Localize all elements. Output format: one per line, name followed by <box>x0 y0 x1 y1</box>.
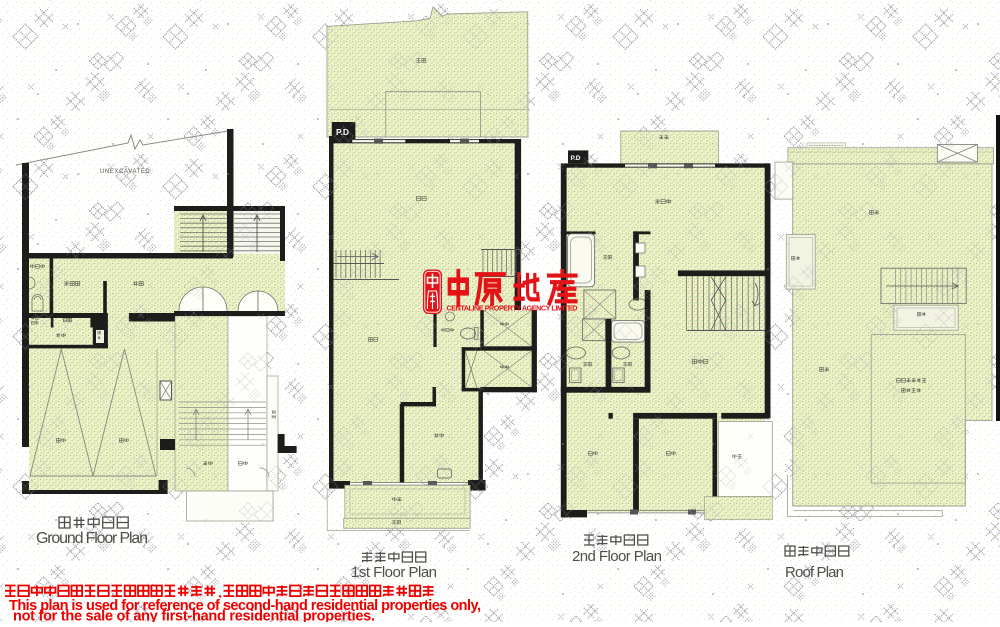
svg-text:not for the sale of any first-: not for the sale of any first-hand resid… <box>13 609 375 623</box>
svg-text:CENTALINE PROPERTY AGENCY LIMI: CENTALINE PROPERTY AGENCY LIMITED <box>447 304 578 313</box>
